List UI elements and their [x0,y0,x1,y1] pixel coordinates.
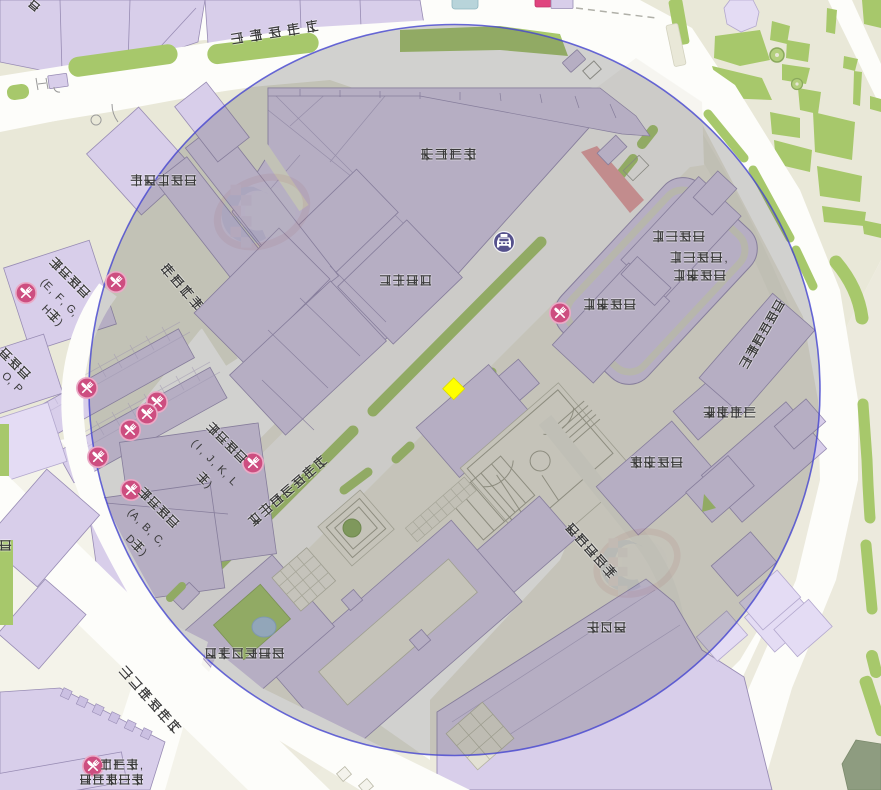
svg-text:,: , [140,760,143,772]
svg-text:,: , [724,251,727,265]
